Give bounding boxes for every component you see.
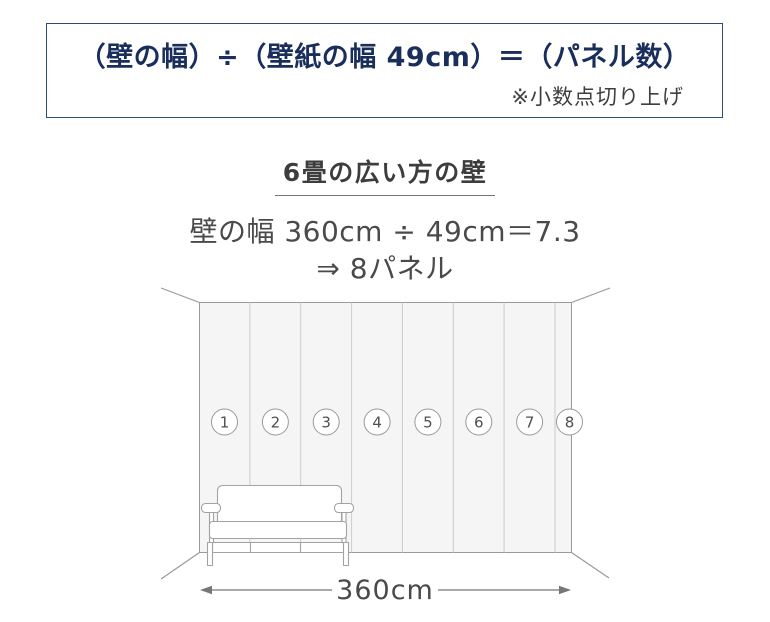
calculation-line: 壁の幅 360cm ÷ 49cm＝7.3 [0,210,770,250]
sofa-backrest [218,486,342,526]
panel-number-badge: 1 [212,409,238,435]
panel-number-badge: 2 [262,409,288,435]
perspective-line [572,553,610,579]
formula-box: （壁の幅）÷（壁紙の幅 49cm）＝（パネル数） ※小数点切り上げ [46,23,723,118]
svg-text:4: 4 [372,414,382,432]
panel-number-badge: 8 [557,409,583,435]
sofa-armrest [202,504,221,513]
wall-diagram: 1 2 3 4 5 6 7 [0,280,770,622]
perspective-line [572,288,611,303]
section-heading-label: 6畳の広い方の壁 [275,153,495,196]
sofa-leg [208,543,213,566]
sofa-rail [213,543,347,553]
arrow-left-icon [200,586,212,594]
svg-text:3: 3 [321,414,331,432]
svg-text:1: 1 [220,414,230,432]
svg-text:2: 2 [271,414,281,432]
panel-number-badge: 5 [415,409,441,435]
svg-text:8: 8 [565,414,575,432]
panel-number-badge: 6 [466,409,492,435]
sofa-illustration [202,486,354,566]
sofa-seat [210,522,347,539]
panel-number-badge: 3 [313,409,339,435]
svg-text:5: 5 [423,414,433,432]
panel-number-badge: 4 [364,409,390,435]
section-heading: 6畳の広い方の壁 [0,153,770,196]
svg-text:6: 6 [474,414,484,432]
sofa-armrest [335,504,354,513]
rounding-note: ※小数点切り上げ [511,81,684,111]
panel-number-badge: 7 [517,409,543,435]
perspective-line [161,288,200,303]
panel-count-formula: （壁の幅）÷（壁紙の幅 49cm）＝（パネル数） [47,35,722,74]
dimension-label: 360cm [336,575,434,606]
sofa-leg [344,543,349,566]
svg-text:7: 7 [525,414,535,432]
perspective-line [161,553,200,580]
page: （壁の幅）÷（壁紙の幅 49cm）＝（パネル数） ※小数点切り上げ 6畳の広い方… [0,0,770,622]
arrow-right-icon [559,586,571,594]
